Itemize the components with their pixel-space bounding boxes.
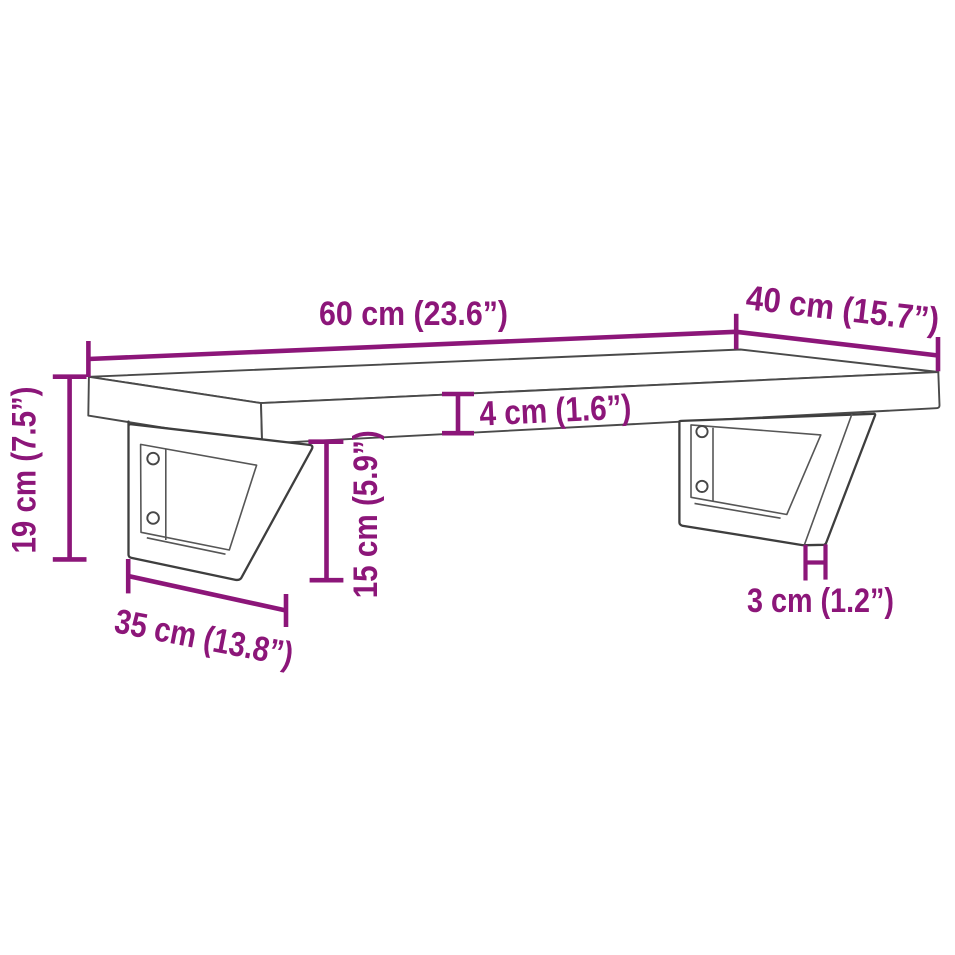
svg-text:60 cm (23.6”): 60 cm (23.6”) — [319, 295, 508, 333]
svg-text:4 cm (1.6”): 4 cm (1.6”) — [479, 388, 633, 433]
svg-text:3 cm (1.2”): 3 cm (1.2”) — [747, 582, 894, 620]
svg-text:19 cm (7.5”): 19 cm (7.5”) — [6, 387, 44, 554]
svg-text:15 cm (5.9”): 15 cm (5.9”) — [347, 430, 385, 598]
